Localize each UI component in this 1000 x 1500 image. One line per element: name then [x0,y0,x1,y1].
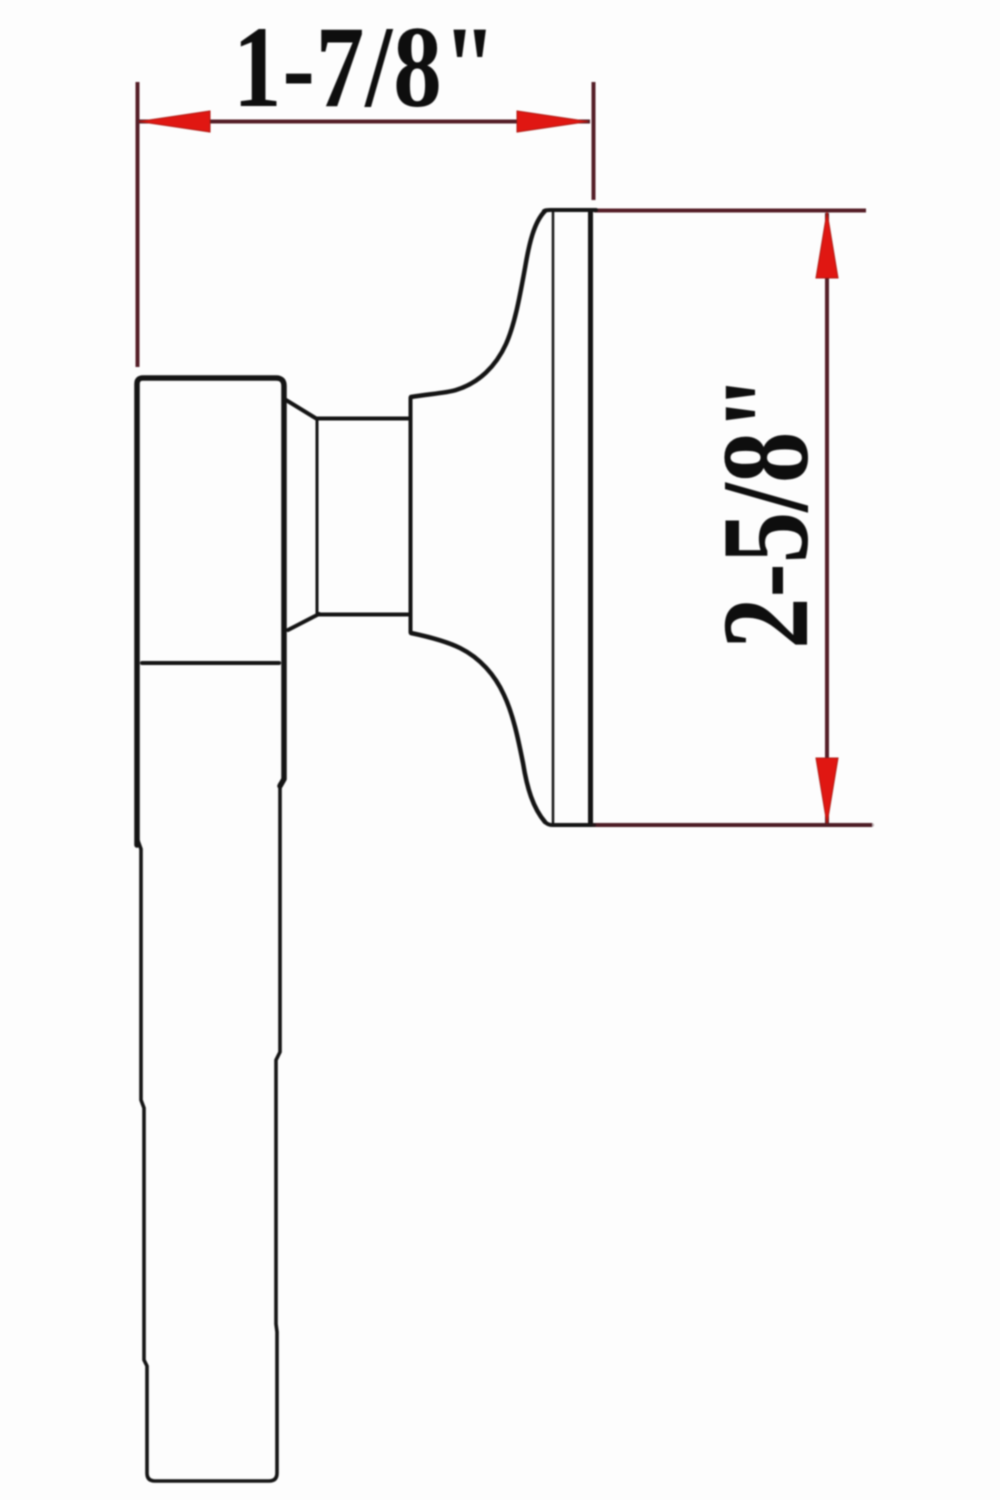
svg-text:2-5/8": 2-5/8" [697,374,834,649]
svg-text:1-7/8": 1-7/8" [233,4,498,132]
